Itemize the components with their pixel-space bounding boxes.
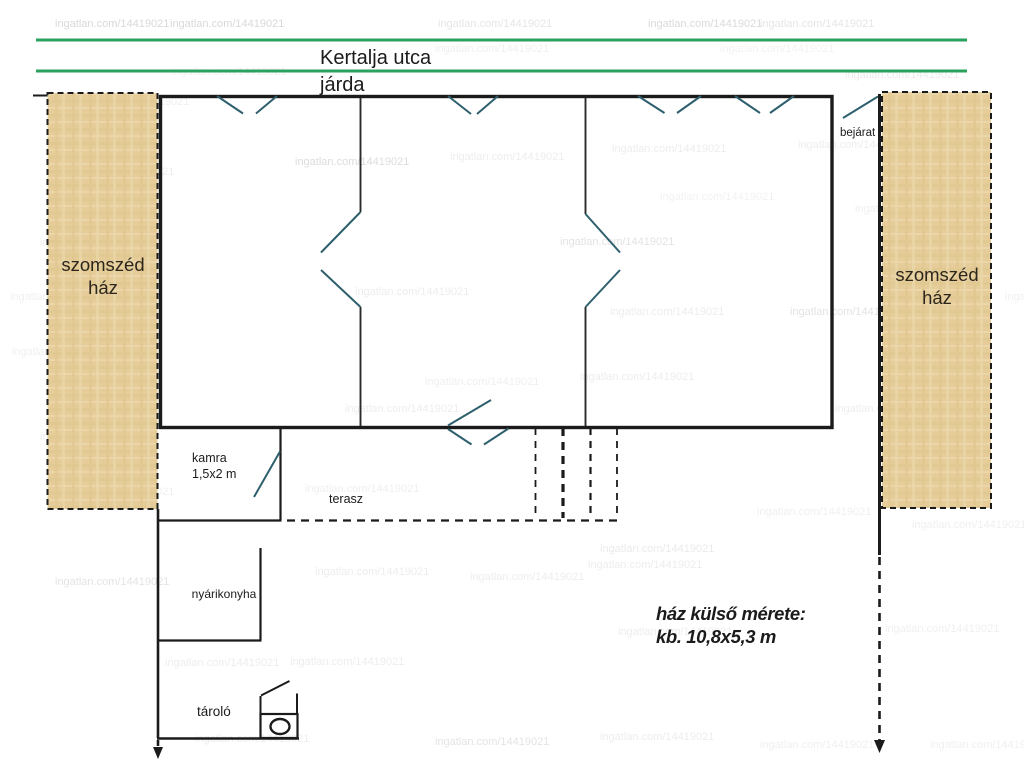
svg-text:ingatlan.com/14419021: ingatlan.com/14419021 [560,236,674,248]
svg-text:ingatlan.com/14419021: ingatlan.com/14419021 [757,506,871,518]
svg-text:ingatlan.com/14419021: ingatlan.com/14419021 [580,371,694,383]
svg-text:járda: járda [319,74,365,96]
svg-text:tároló: tároló [197,704,231,719]
svg-text:ház: ház [88,277,118,298]
svg-text:ingatlan.com/14419021: ingatlan.com/14419021 [55,576,169,588]
svg-text:ingatlan.com/14419021: ingatlan.com/14419021 [588,559,702,571]
svg-text:kb. 10,8x5,3 m: kb. 10,8x5,3 m [656,626,776,647]
svg-text:ingatlan.com/14419021: ingatlan.com/14419021 [600,731,714,743]
svg-text:szomszéd: szomszéd [61,254,144,275]
svg-text:ingatlan.com/14419021: ingatlan.com/14419021 [660,191,774,203]
svg-text:ingatlan.com/14419021: ingatlan.com/14419021 [760,739,874,751]
svg-text:ingatlan.com/14419021: ingatlan.com/14419021 [315,566,429,578]
svg-text:ingatlan.com/14419021: ingatlan.com/14419021 [438,18,552,30]
svg-text:Kertalja utca: Kertalja utca [320,47,432,69]
svg-text:ingatlan.com/14419021: ingatlan.com/14419021 [425,376,539,388]
svg-text:ingatlan.com/14419021: ingatlan.com/14419021 [912,519,1024,531]
svg-text:ingatlan.com/14419021: ingatlan.com/14419021 [355,286,469,298]
svg-text:ingatlan.com/14419021: ingatlan.com/14419021 [55,18,169,30]
svg-text:ingatlan.com/14419021: ingatlan.com/14419021 [720,43,834,55]
svg-text:ingatlan.com/14419021: ingatlan.com/14419021 [170,18,284,30]
svg-text:ingatlan.com/14419021: ingatlan.com/14419021 [760,18,874,30]
svg-text:kamra: kamra [192,451,227,465]
svg-text:ingatlan.com/14419021: ingatlan.com/14419021 [885,623,999,635]
svg-text:ingatlan.com/14419021: ingatlan.com/14419021 [1005,291,1024,303]
svg-text:nyárikonyha: nyárikonyha [192,587,257,601]
svg-text:ingatlan.com/14419021: ingatlan.com/14419021 [930,739,1024,751]
svg-text:ingatlan.com/14419021: ingatlan.com/14419021 [165,657,279,669]
svg-text:bejárat: bejárat [840,127,876,139]
svg-text:ingatlan.com/14419021: ingatlan.com/14419021 [345,403,459,415]
svg-text:ingatlan.com/14419021: ingatlan.com/14419021 [435,736,549,748]
svg-text:terasz: terasz [329,492,363,506]
svg-text:ingatlan.com/14419021: ingatlan.com/14419021 [610,306,724,318]
svg-text:ingatlan.com/14419021: ingatlan.com/14419021 [435,43,549,55]
svg-text:szomszéd: szomszéd [895,264,978,285]
svg-text:ingatlan.com/14419021: ingatlan.com/14419021 [295,156,409,168]
svg-text:ingatlan.com/14419021: ingatlan.com/14419021 [612,143,726,155]
svg-text:ház külső mérete:: ház külső mérete: [656,603,806,624]
svg-text:ingatlan.com/14419021: ingatlan.com/14419021 [290,656,404,668]
svg-text:1,5x2 m: 1,5x2 m [192,467,236,481]
svg-text:ingatlan.com/14419021: ingatlan.com/14419021 [450,151,564,163]
svg-text:ingatlan.com/14419021: ingatlan.com/14419021 [600,543,714,555]
svg-text:ház: ház [922,287,952,308]
svg-text:ingatlan.com/14419021: ingatlan.com/14419021 [648,18,762,30]
svg-text:ingatlan.com/14419021: ingatlan.com/14419021 [470,571,584,583]
